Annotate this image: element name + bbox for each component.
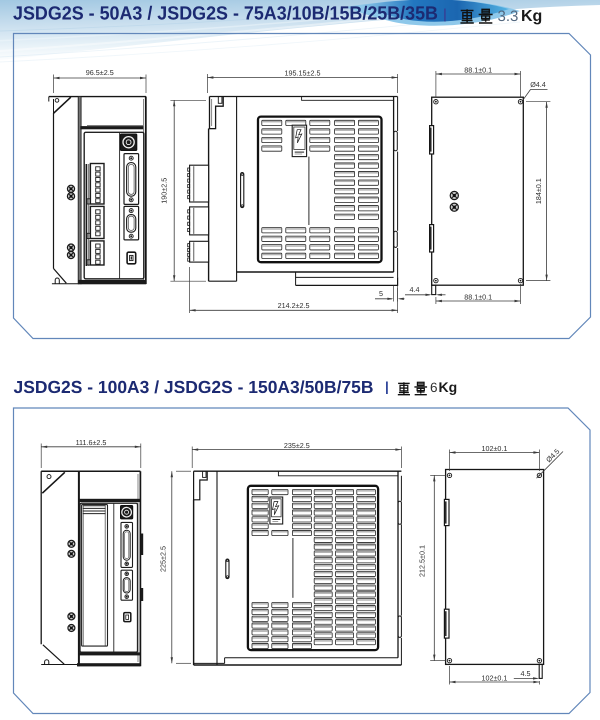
svg-text:Ø4.4: Ø4.4 [530, 80, 546, 89]
svg-text:195.15±2.5: 195.15±2.5 [285, 68, 321, 77]
svg-text:4.4: 4.4 [410, 285, 420, 294]
svg-text:88.1±0.1: 88.1±0.1 [464, 293, 492, 302]
svg-text:214.2±2.5: 214.2±2.5 [278, 301, 310, 310]
svg-text:190±2.5: 190±2.5 [160, 178, 169, 204]
svg-text:111.6±2.5: 111.6±2.5 [76, 438, 107, 447]
svg-text:Kg: Kg [521, 8, 542, 25]
svg-text:88.1±0.1: 88.1±0.1 [464, 65, 492, 74]
svg-text:225±2.5: 225±2.5 [159, 546, 168, 572]
svg-text:96.5±2.5: 96.5±2.5 [86, 68, 114, 77]
svg-text:6: 6 [430, 380, 438, 395]
svg-text:JSDG2S - 50A3 / JSDG2S - 75A3/: JSDG2S - 50A3 / JSDG2S - 75A3/10B/15B/25… [13, 4, 438, 25]
svg-text:235±2.5: 235±2.5 [284, 441, 310, 450]
svg-text:212.5±0.1: 212.5±0.1 [418, 545, 427, 577]
svg-text:4.5: 4.5 [521, 669, 531, 678]
svg-text:Kg: Kg [439, 379, 458, 395]
svg-text:JSDG2S - 100A3 / JSDG2S - 150A: JSDG2S - 100A3 / JSDG2S - 150A3/50B/75B [14, 377, 374, 397]
svg-text:5: 5 [379, 289, 383, 298]
svg-text:102±0.1: 102±0.1 [481, 444, 507, 453]
svg-text:3.3: 3.3 [498, 8, 519, 25]
svg-text:184±0.1: 184±0.1 [534, 178, 543, 204]
svg-text:102±0.1: 102±0.1 [481, 674, 507, 683]
